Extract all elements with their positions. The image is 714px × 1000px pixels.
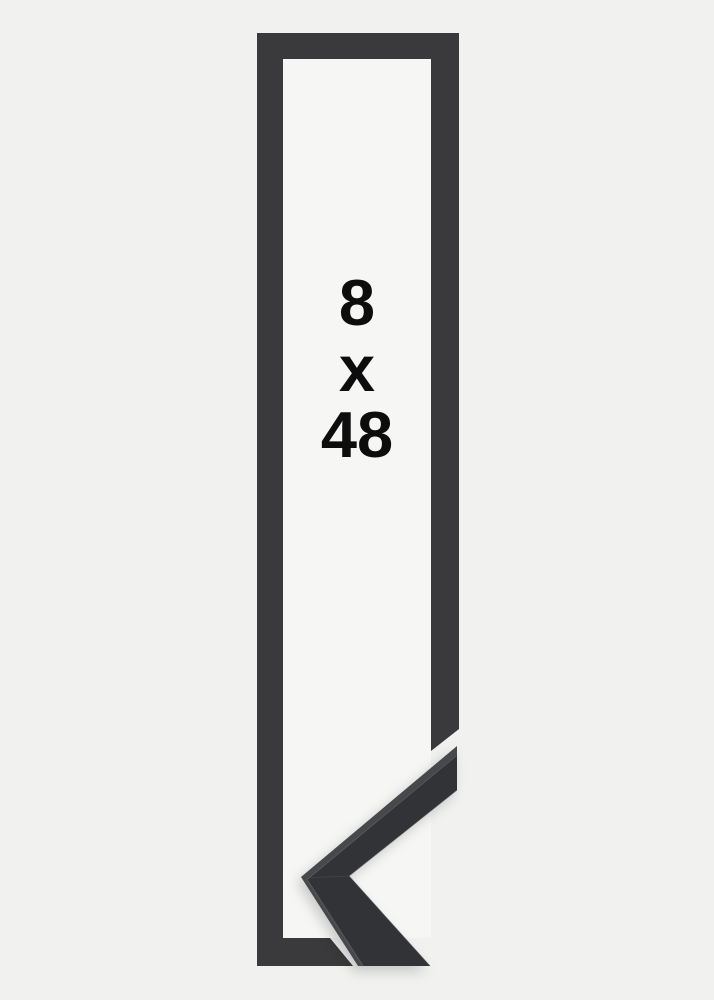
size-label: 8 x 48 xyxy=(283,270,431,468)
size-width-text: 8 xyxy=(283,270,431,336)
frame-graphic xyxy=(0,0,714,1000)
frame-product-image: 8 x 48 xyxy=(0,0,714,1000)
size-separator-text: x xyxy=(283,336,431,402)
size-height-text: 48 xyxy=(283,402,431,468)
